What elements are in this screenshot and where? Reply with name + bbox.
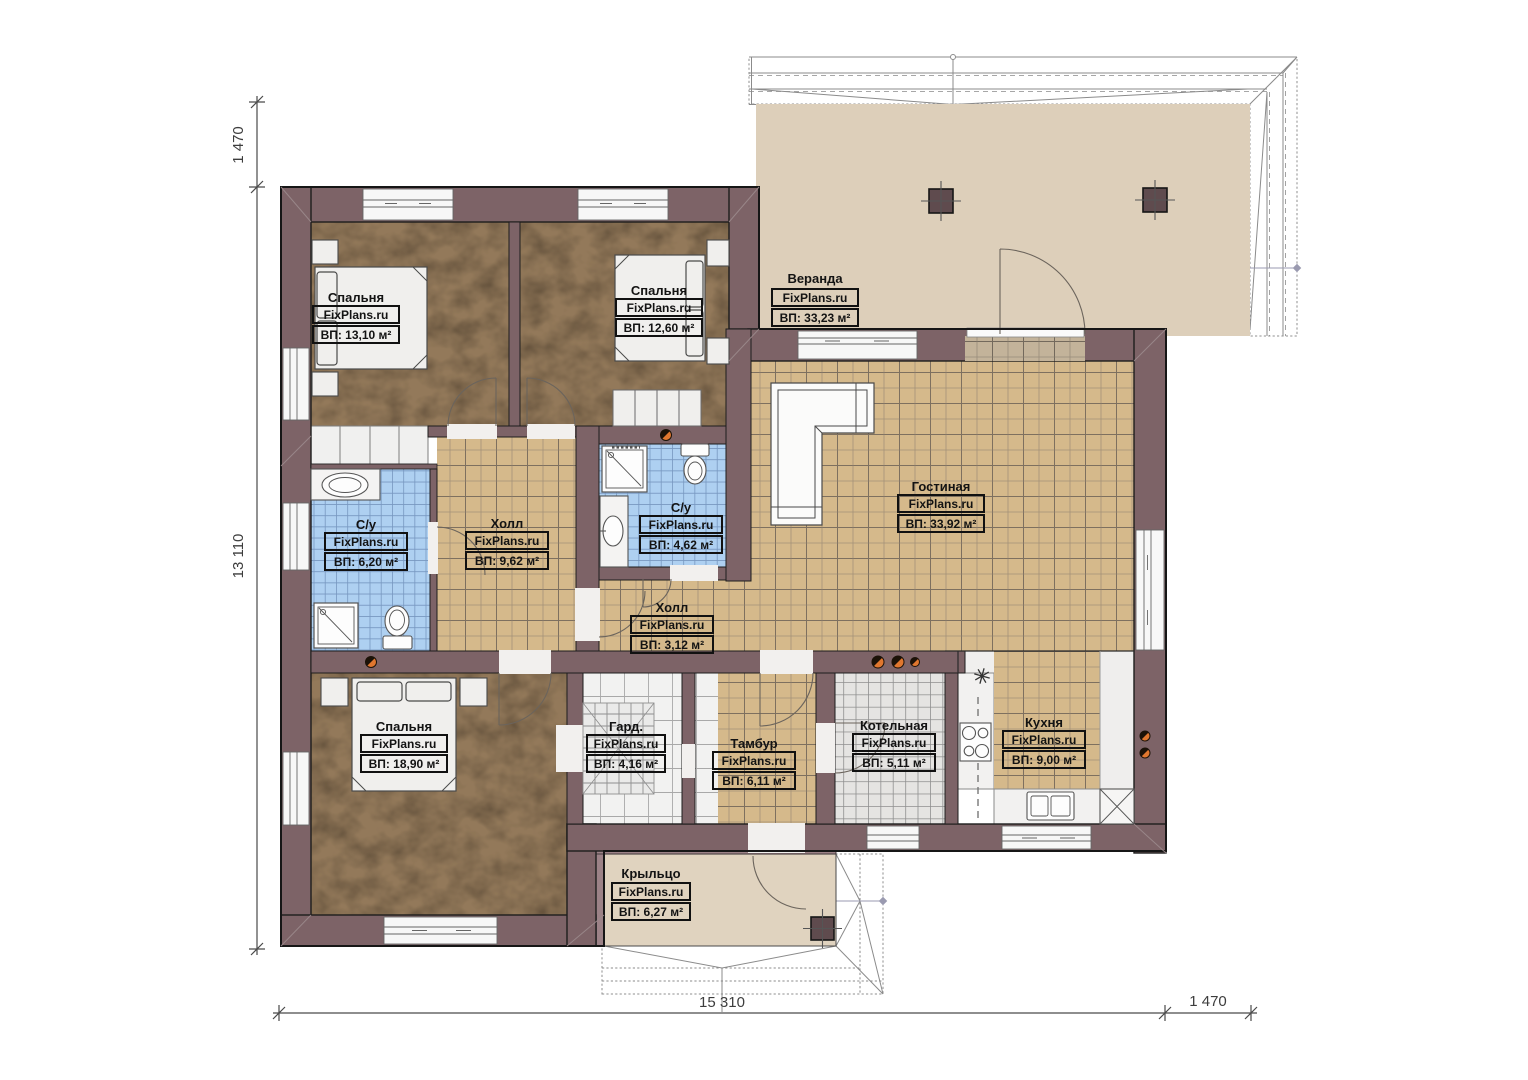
svg-text:FixPlans.ru: FixPlans.ru (909, 497, 974, 511)
svg-text:1 470: 1 470 (1189, 993, 1227, 1010)
svg-text:Спальня: Спальня (631, 283, 687, 298)
svg-text:ВП: 9,62 м²: ВП: 9,62 м² (475, 554, 539, 568)
svg-text:ВП: 18,90 м²: ВП: 18,90 м² (369, 757, 440, 771)
svg-text:FixPlans.ru: FixPlans.ru (372, 737, 437, 751)
svg-text:FixPlans.ru: FixPlans.ru (594, 737, 659, 751)
svg-text:13 110: 13 110 (230, 534, 247, 579)
svg-text:ВП: 33,23 м²: ВП: 33,23 м² (780, 311, 851, 325)
svg-text:ВП: 12,60 м²: ВП: 12,60 м² (624, 321, 695, 335)
svg-text:Тамбур: Тамбур (730, 736, 777, 751)
svg-text:FixPlans.ru: FixPlans.ru (1012, 733, 1077, 747)
svg-text:Спальня: Спальня (328, 290, 384, 305)
svg-text:FixPlans.ru: FixPlans.ru (324, 308, 389, 322)
svg-text:FixPlans.ru: FixPlans.ru (862, 736, 927, 750)
svg-text:ВП: 3,12 м²: ВП: 3,12 м² (640, 638, 704, 652)
svg-text:FixPlans.ru: FixPlans.ru (640, 618, 705, 632)
svg-text:С/у: С/у (356, 517, 377, 532)
svg-text:ВП: 6,11 м²: ВП: 6,11 м² (722, 774, 786, 788)
svg-text:Спальня: Спальня (376, 719, 432, 734)
svg-text:Крыльцо: Крыльцо (621, 866, 680, 881)
svg-text:Котельная: Котельная (860, 718, 928, 733)
svg-text:FixPlans.ru: FixPlans.ru (475, 534, 540, 548)
svg-text:С/у: С/у (671, 500, 692, 515)
svg-text:Гард.: Гард. (609, 719, 643, 734)
svg-text:ВП: 6,27 м²: ВП: 6,27 м² (619, 905, 683, 919)
svg-text:FixPlans.ru: FixPlans.ru (783, 291, 848, 305)
svg-text:ВП: 13,10 м²: ВП: 13,10 м² (321, 328, 392, 342)
svg-text:Холл: Холл (656, 600, 689, 615)
svg-text:Кухня: Кухня (1025, 715, 1063, 730)
svg-text:ВП: 4,16 м²: ВП: 4,16 м² (594, 757, 658, 771)
svg-text:ВП: 33,92 м²: ВП: 33,92 м² (906, 517, 977, 531)
svg-text:Холл: Холл (491, 516, 524, 531)
svg-text:15 310: 15 310 (699, 994, 745, 1011)
svg-text:Веранда: Веранда (787, 271, 843, 286)
svg-text:FixPlans.ru: FixPlans.ru (722, 754, 787, 768)
svg-text:ВП: 5,11 м²: ВП: 5,11 м² (862, 756, 926, 770)
svg-text:FixPlans.ru: FixPlans.ru (334, 535, 399, 549)
svg-text:ВП: 4,62 м²: ВП: 4,62 м² (649, 538, 713, 552)
svg-text:FixPlans.ru: FixPlans.ru (649, 518, 714, 532)
svg-text:ВП: 6,20 м²: ВП: 6,20 м² (334, 555, 398, 569)
svg-text:ВП: 9,00 м²: ВП: 9,00 м² (1012, 753, 1076, 767)
svg-text:FixPlans.ru: FixPlans.ru (627, 301, 692, 315)
svg-text:Гостиная: Гостиная (912, 479, 971, 494)
svg-text:FixPlans.ru: FixPlans.ru (619, 885, 684, 899)
svg-text:1 470: 1 470 (230, 126, 247, 164)
